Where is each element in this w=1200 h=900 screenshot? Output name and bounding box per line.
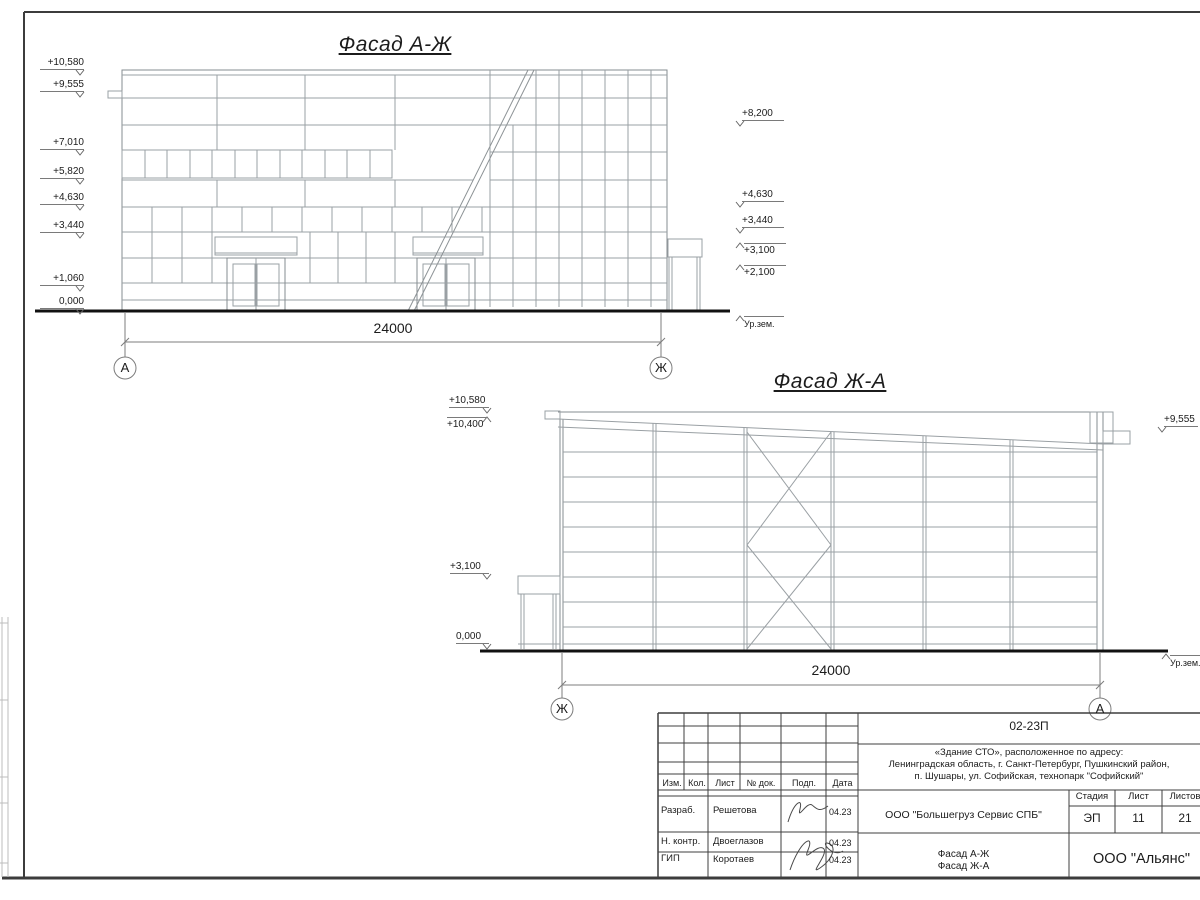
row-name: Решетова xyxy=(713,806,757,817)
column-header-kol: Кол. xyxy=(685,778,709,788)
elevation-mark: +4,630 xyxy=(40,192,84,205)
elevation-mark: +10,580 xyxy=(40,57,84,70)
elevation-mark: +7,010 xyxy=(40,137,84,150)
project-address-line1: «Здание СТО», расположенное по адресу: xyxy=(860,748,1198,759)
row-date: 04.23 xyxy=(829,807,852,817)
organization-name: ООО "Альянс" xyxy=(1069,851,1200,868)
left-stamp-strip xyxy=(0,617,8,877)
project-address-line3: п. Шушары, ул. Софийская, технопарк "Соф… xyxy=(860,772,1198,783)
column-header-izm: Изм. xyxy=(659,778,685,788)
facade2-title: Фасад Ж-А xyxy=(712,370,948,394)
elevation-mark: +10,580 xyxy=(449,395,489,408)
row-role: Н. контр. xyxy=(661,837,700,848)
sheets-total-value: 21 xyxy=(1162,812,1200,826)
client-name: ООО "Большегруз Сервис СПБ" xyxy=(858,809,1069,821)
elevation-ticks xyxy=(76,70,1170,659)
elevation-mark: +3,100 xyxy=(744,243,786,257)
elevation-mark: +4,630 xyxy=(742,189,784,202)
doc-code: 02-23П xyxy=(858,720,1200,734)
elevation-mark: +5,820 xyxy=(40,166,84,179)
row-name: Двоеглазов xyxy=(713,837,764,848)
elevation-mark: +10,400 xyxy=(447,417,487,431)
facade-azh xyxy=(108,70,702,311)
dimension-label: 24000 xyxy=(781,662,881,678)
dimension-label: 24000 xyxy=(343,320,443,336)
row-date: 04.23 xyxy=(829,855,852,865)
elevation-mark: +3,440 xyxy=(742,215,784,228)
elevation-mark: +3,440 xyxy=(40,220,84,233)
column-header-data: Дата xyxy=(827,778,858,788)
elevation-mark: +8,200 xyxy=(742,108,784,121)
dimensions xyxy=(114,313,1111,720)
row-role: Разраб. xyxy=(661,806,695,817)
row-date: 04.23 xyxy=(829,838,852,848)
row-role: ГИП xyxy=(661,854,680,865)
elevation-mark: +9,555 xyxy=(1164,414,1198,427)
elevation-mark: +1,060 xyxy=(40,273,84,286)
facade-zha xyxy=(518,411,1130,651)
row-name: Коротаев xyxy=(713,855,754,866)
elevation-mark: 0,000 xyxy=(40,296,84,309)
column-header-doc: № док. xyxy=(741,778,781,788)
axis-bubble-zh: Ж xyxy=(551,702,573,717)
sheets-total-header: Листов xyxy=(1162,792,1200,803)
column-header-list: Лист xyxy=(709,778,741,788)
sheet-number: 11 xyxy=(1115,812,1162,826)
ground-lines xyxy=(35,311,1168,651)
stage-value: ЭП xyxy=(1069,812,1115,826)
sheet-header: Лист xyxy=(1115,792,1162,803)
ground-level-label: Ур.зем. xyxy=(1170,655,1200,669)
elevation-mark: +3,100 xyxy=(450,561,489,574)
sheet-content-line1: Фасад А-Ж xyxy=(858,849,1069,861)
facade1-title: Фасад А-Ж xyxy=(280,33,510,57)
elevation-mark: +2,100 xyxy=(744,265,786,279)
elevation-mark: 0,000 xyxy=(456,631,489,644)
project-address-line2: Ленинградская область, г. Санкт-Петербур… xyxy=(860,760,1198,771)
drawing-sheet: Фасад А-Ж +10,580 +9,555 +7,010 +5,820 +… xyxy=(0,0,1200,900)
ground-level-label: Ур.зем. xyxy=(744,316,784,330)
column-header-podp: Подп. xyxy=(782,778,826,788)
axis-bubble-a: А xyxy=(1089,702,1111,717)
stage-header: Стадия xyxy=(1069,792,1115,803)
sheet-content-line2: Фасад Ж-А xyxy=(858,861,1069,873)
axis-bubble-a: А xyxy=(114,361,136,376)
axis-bubble-zh: Ж xyxy=(650,361,672,376)
elevation-mark: +9,555 xyxy=(40,79,84,92)
